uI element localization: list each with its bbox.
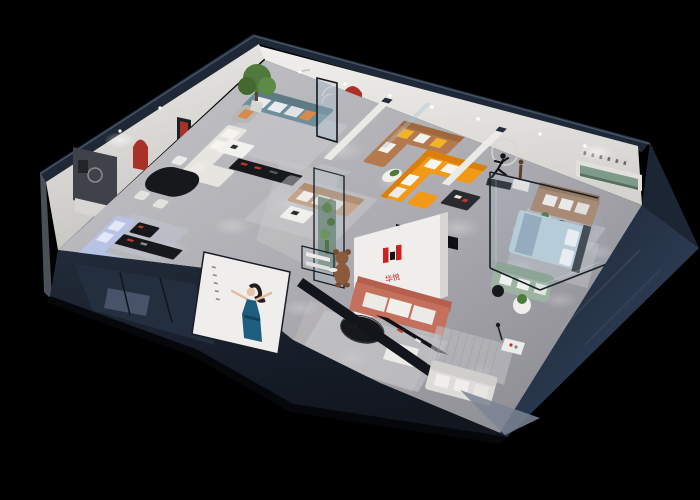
bear-tray xyxy=(329,268,338,272)
wall-wash-light xyxy=(104,132,136,148)
isometric-scene: 华悦 xyxy=(0,0,700,500)
red-arch-niche xyxy=(133,140,148,172)
showroom-render: 华悦 xyxy=(0,0,700,500)
framed-art xyxy=(78,160,88,173)
bedroom-stool xyxy=(492,285,504,297)
glass-door-panel xyxy=(317,78,337,142)
